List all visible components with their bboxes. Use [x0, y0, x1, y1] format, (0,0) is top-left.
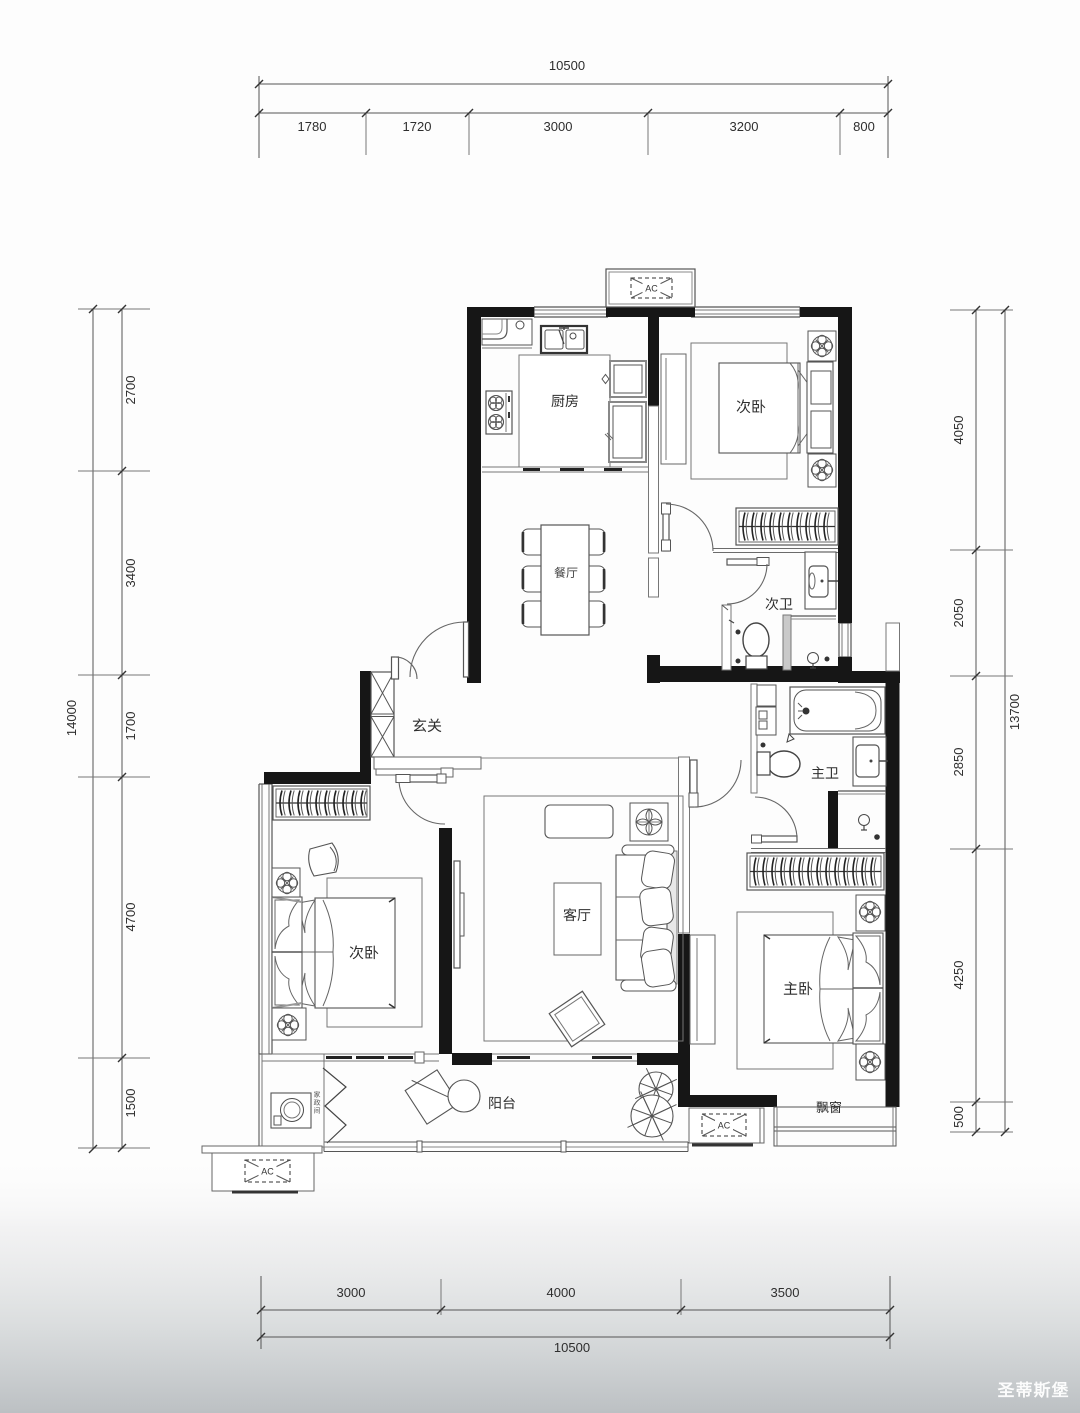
- svg-text:4250: 4250: [951, 961, 966, 990]
- svg-text:2850: 2850: [951, 748, 966, 777]
- svg-text:14000: 14000: [64, 700, 79, 736]
- svg-text:3500: 3500: [771, 1285, 800, 1300]
- svg-text:1500: 1500: [123, 1089, 138, 1118]
- svg-text:3000: 3000: [337, 1285, 366, 1300]
- svg-text:3400: 3400: [123, 559, 138, 588]
- svg-text:AC: AC: [645, 284, 658, 294]
- svg-text:10500: 10500: [554, 1340, 590, 1355]
- svg-text:800: 800: [853, 119, 875, 134]
- svg-text:1700: 1700: [123, 712, 138, 741]
- svg-text:2050: 2050: [951, 599, 966, 628]
- svg-text:4050: 4050: [951, 416, 966, 445]
- svg-text:500: 500: [951, 1106, 966, 1128]
- svg-text:AC: AC: [261, 1167, 274, 1177]
- svg-text:10500: 10500: [549, 58, 585, 73]
- svg-text:3200: 3200: [730, 119, 759, 134]
- svg-text:AC: AC: [718, 1121, 731, 1131]
- svg-text:4700: 4700: [123, 903, 138, 932]
- svg-text:13700: 13700: [1007, 694, 1022, 730]
- svg-text:1780: 1780: [298, 119, 327, 134]
- svg-text:2700: 2700: [123, 376, 138, 405]
- svg-text:4000: 4000: [547, 1285, 576, 1300]
- svg-text:1720: 1720: [403, 119, 432, 134]
- svg-text:3000: 3000: [544, 119, 573, 134]
